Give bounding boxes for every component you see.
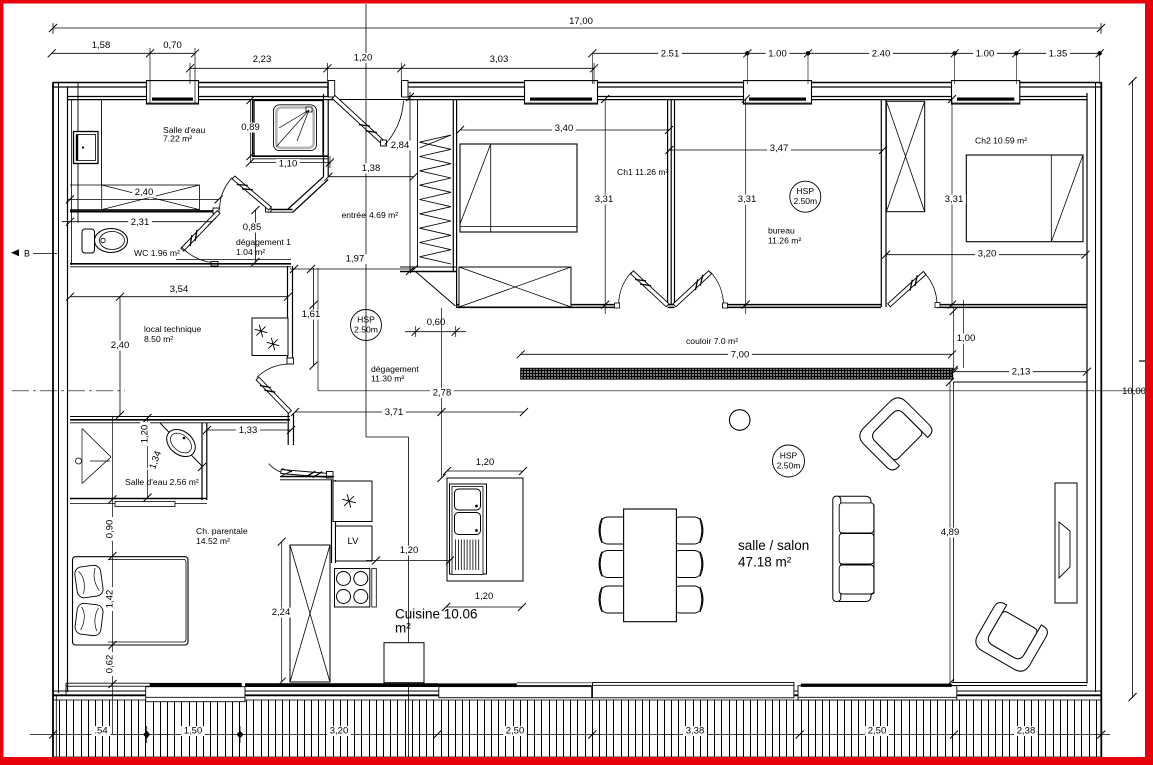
svg-text:2,50: 2,50 bbox=[868, 726, 887, 737]
svg-text:4.69 m²: 4.69 m² bbox=[369, 210, 398, 220]
svg-text:3,71: 3,71 bbox=[385, 407, 404, 418]
svg-text:11.26 m²: 11.26 m² bbox=[768, 236, 801, 246]
svg-text:HSP: HSP bbox=[797, 186, 815, 196]
svg-text:Ch2 10.59 m²: Ch2 10.59 m² bbox=[975, 136, 1027, 146]
svg-text:1,20: 1,20 bbox=[140, 425, 151, 444]
svg-text:2.51: 2.51 bbox=[661, 48, 680, 59]
svg-text:3,54: 3,54 bbox=[170, 284, 189, 295]
svg-text:4,89: 4,89 bbox=[941, 527, 960, 538]
svg-text:Ch. parentale: Ch. parentale bbox=[196, 526, 248, 536]
svg-text:2,40: 2,40 bbox=[111, 340, 130, 351]
svg-text:dégagement 1: dégagement 1 bbox=[236, 237, 291, 247]
svg-text:2.40: 2.40 bbox=[872, 48, 891, 59]
svg-text:1,20: 1,20 bbox=[400, 545, 419, 556]
svg-text:0,85: 0,85 bbox=[243, 222, 262, 233]
svg-text:1,33: 1,33 bbox=[239, 425, 258, 436]
svg-text:Salle d'eau 2.56 m²: Salle d'eau 2.56 m² bbox=[125, 477, 199, 487]
svg-text:3,47: 3,47 bbox=[770, 143, 789, 154]
svg-text:8.50 m²: 8.50 m² bbox=[144, 334, 173, 344]
svg-text:0,90: 0,90 bbox=[105, 520, 116, 539]
svg-text:17,00: 17,00 bbox=[569, 16, 593, 27]
svg-text:2,38: 2,38 bbox=[1017, 726, 1036, 737]
svg-text:Ch1 11.26 m²: Ch1 11.26 m² bbox=[617, 167, 669, 177]
svg-text:entrée: entrée bbox=[342, 210, 367, 220]
svg-text:3,20: 3,20 bbox=[330, 726, 349, 737]
svg-text:3,31: 3,31 bbox=[595, 194, 614, 205]
svg-text:7,00: 7,00 bbox=[731, 350, 750, 361]
svg-text:Cuisine 10.06: Cuisine 10.06 bbox=[395, 607, 478, 622]
svg-text:LV: LV bbox=[348, 536, 360, 547]
svg-text:3,31: 3,31 bbox=[738, 194, 757, 205]
svg-text:B: B bbox=[24, 249, 30, 259]
svg-text:3,03: 3,03 bbox=[490, 54, 509, 65]
svg-text:10,00: 10,00 bbox=[1122, 386, 1146, 397]
svg-text:3,20: 3,20 bbox=[978, 249, 997, 260]
svg-text:1,61: 1,61 bbox=[302, 309, 321, 320]
svg-text:2,40: 2,40 bbox=[135, 187, 154, 198]
svg-text:1.04 m²: 1.04 m² bbox=[236, 247, 265, 257]
svg-text:1.00: 1.00 bbox=[976, 48, 995, 59]
svg-text:salle / salon: salle / salon bbox=[738, 538, 809, 553]
svg-text:local technique: local technique bbox=[144, 324, 202, 334]
svg-text:0,89: 0,89 bbox=[241, 122, 260, 133]
svg-text:2,23: 2,23 bbox=[253, 54, 272, 65]
svg-text:7.22 m²: 7.22 m² bbox=[163, 134, 192, 144]
svg-text:1,20: 1,20 bbox=[475, 591, 494, 602]
svg-text:dégagement: dégagement bbox=[371, 364, 419, 374]
svg-text:1,97: 1,97 bbox=[346, 254, 365, 265]
svg-text:1.35: 1.35 bbox=[1049, 48, 1068, 59]
svg-text:2.50m: 2.50m bbox=[777, 461, 801, 471]
svg-text:bureau: bureau bbox=[768, 226, 795, 236]
svg-text:couloir 7.0 m²: couloir 7.0 m² bbox=[686, 336, 738, 346]
svg-text:1,58: 1,58 bbox=[92, 40, 111, 51]
svg-text:2,31: 2,31 bbox=[131, 217, 150, 228]
svg-text:11.30 m²: 11.30 m² bbox=[371, 374, 404, 384]
svg-text:2,78: 2,78 bbox=[433, 388, 452, 399]
svg-text:3,38: 3,38 bbox=[686, 726, 705, 737]
svg-text:1,20: 1,20 bbox=[476, 457, 495, 468]
svg-text:2,50: 2,50 bbox=[506, 726, 525, 737]
svg-text:1,38: 1,38 bbox=[362, 163, 381, 174]
svg-text:3,40: 3,40 bbox=[555, 123, 574, 134]
svg-text:14.52 m²: 14.52 m² bbox=[196, 536, 230, 546]
svg-text:0,70: 0,70 bbox=[163, 40, 182, 51]
svg-text:1,00: 1,00 bbox=[957, 333, 976, 344]
svg-text:2.50m: 2.50m bbox=[793, 196, 817, 206]
svg-text:2,13: 2,13 bbox=[1012, 367, 1031, 378]
svg-text:47.18 m²: 47.18 m² bbox=[738, 555, 792, 570]
svg-text:1,42: 1,42 bbox=[105, 590, 116, 609]
svg-text:1,50: 1,50 bbox=[184, 726, 203, 737]
svg-text:HSP: HSP bbox=[780, 451, 798, 461]
svg-text:1,10: 1,10 bbox=[279, 159, 298, 170]
svg-text:.54: .54 bbox=[94, 726, 107, 737]
svg-text:2,24: 2,24 bbox=[272, 607, 291, 618]
svg-text:0,60: 0,60 bbox=[427, 317, 446, 328]
svg-text:1,20: 1,20 bbox=[354, 53, 373, 64]
svg-text:1.00: 1.00 bbox=[768, 48, 787, 59]
svg-text:3,31: 3,31 bbox=[945, 194, 964, 205]
svg-text:m²: m² bbox=[395, 621, 411, 636]
svg-text:WC 1.96 m²: WC 1.96 m² bbox=[134, 248, 180, 258]
svg-text:0,62: 0,62 bbox=[105, 655, 116, 674]
svg-text:2,84: 2,84 bbox=[391, 140, 410, 151]
